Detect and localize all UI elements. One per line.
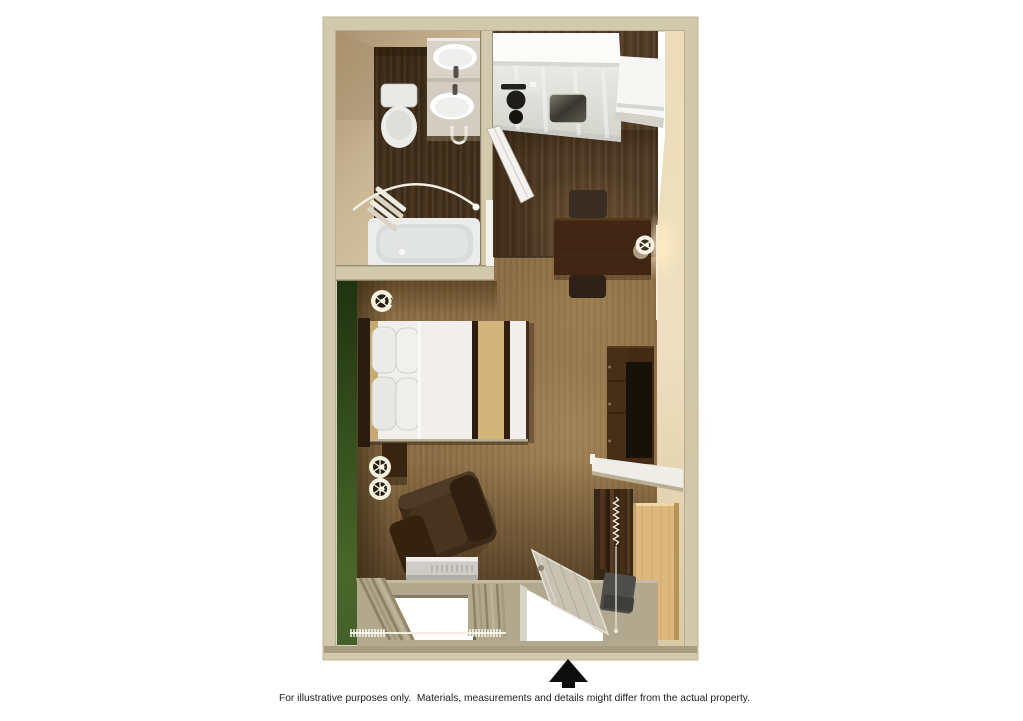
svg-text:For illustrative purposes only: For illustrative purposes only. Material… [279, 693, 750, 704]
